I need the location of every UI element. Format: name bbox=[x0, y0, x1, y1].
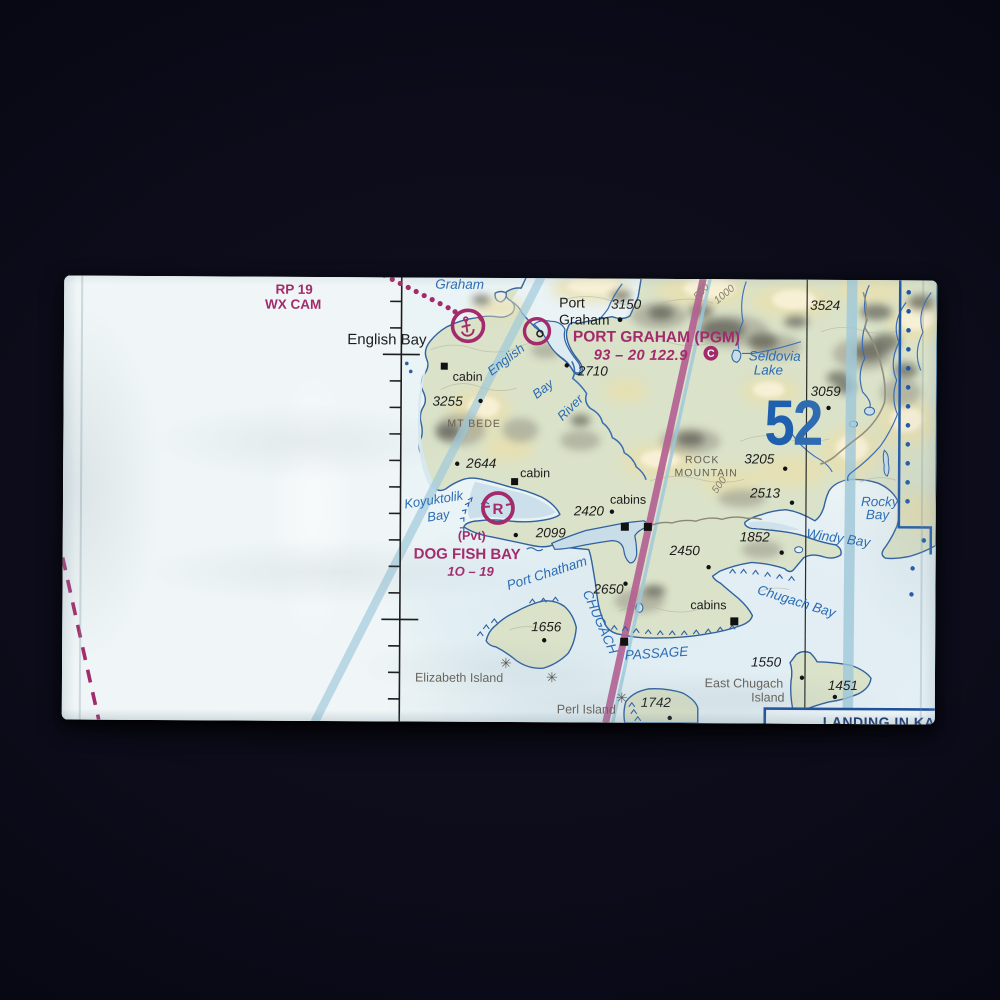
svg-text:1656: 1656 bbox=[531, 619, 562, 634]
svg-text:3255: 3255 bbox=[433, 394, 464, 409]
svg-text:1742: 1742 bbox=[641, 695, 672, 710]
svg-text:2420: 2420 bbox=[573, 503, 605, 518]
svg-text:52: 52 bbox=[764, 386, 822, 459]
svg-text:MOUNTAIN: MOUNTAIN bbox=[675, 467, 738, 479]
svg-text:Port: Port bbox=[559, 294, 585, 310]
svg-text:3524: 3524 bbox=[810, 298, 840, 313]
svg-text:✳: ✳ bbox=[500, 655, 512, 671]
svg-text:LANDING IN KA: LANDING IN KA bbox=[823, 714, 935, 725]
svg-text:RP 19: RP 19 bbox=[276, 282, 313, 297]
svg-text:1550: 1550 bbox=[751, 654, 782, 669]
svg-text:cabin: cabin bbox=[520, 466, 550, 480]
svg-text:2644: 2644 bbox=[465, 456, 496, 471]
svg-text:3150: 3150 bbox=[611, 297, 642, 312]
svg-text:MT BEDE: MT BEDE bbox=[447, 418, 501, 430]
svg-text:cabin: cabin bbox=[453, 370, 483, 384]
svg-text:2513: 2513 bbox=[749, 485, 781, 500]
svg-text:English Bay: English Bay bbox=[347, 331, 427, 348]
svg-text:Elizabeth Island: Elizabeth Island bbox=[415, 671, 503, 686]
svg-text:Graham: Graham bbox=[435, 277, 484, 292]
svg-text:1852: 1852 bbox=[740, 529, 771, 544]
svg-text:Seldovia: Seldovia bbox=[749, 348, 801, 363]
svg-text:Lake: Lake bbox=[754, 362, 783, 377]
svg-text:cabins: cabins bbox=[690, 598, 726, 612]
svg-text:Island: Island bbox=[751, 690, 784, 704]
svg-text:East Chugach: East Chugach bbox=[705, 676, 784, 690]
svg-text:Graham: Graham bbox=[559, 311, 610, 327]
svg-text:2450: 2450 bbox=[669, 543, 701, 558]
svg-text:2099: 2099 bbox=[535, 525, 567, 540]
svg-text:✳: ✳ bbox=[616, 690, 628, 706]
svg-text:(Pvt): (Pvt) bbox=[458, 529, 486, 543]
svg-text:93 – 20 122.9: 93 – 20 122.9 bbox=[594, 348, 688, 365]
svg-text:PORT GRAHAM (PGM): PORT GRAHAM (PGM) bbox=[573, 328, 740, 346]
svg-text:WX CAM: WX CAM bbox=[265, 297, 321, 312]
svg-text:DOG FISH BAY: DOG FISH BAY bbox=[414, 546, 521, 564]
svg-text:2710: 2710 bbox=[577, 363, 609, 378]
svg-text:R: R bbox=[492, 501, 503, 518]
svg-text:cabins: cabins bbox=[610, 493, 646, 507]
svg-text:Bay: Bay bbox=[866, 507, 891, 522]
svg-text:1451: 1451 bbox=[828, 678, 858, 693]
svg-text:ROCK: ROCK bbox=[685, 454, 719, 466]
svg-text:Perl Island: Perl Island bbox=[557, 702, 616, 716]
svg-text:✳: ✳ bbox=[546, 669, 558, 685]
svg-text:1O – 19: 1O – 19 bbox=[447, 564, 494, 579]
svg-text:C: C bbox=[707, 348, 715, 360]
